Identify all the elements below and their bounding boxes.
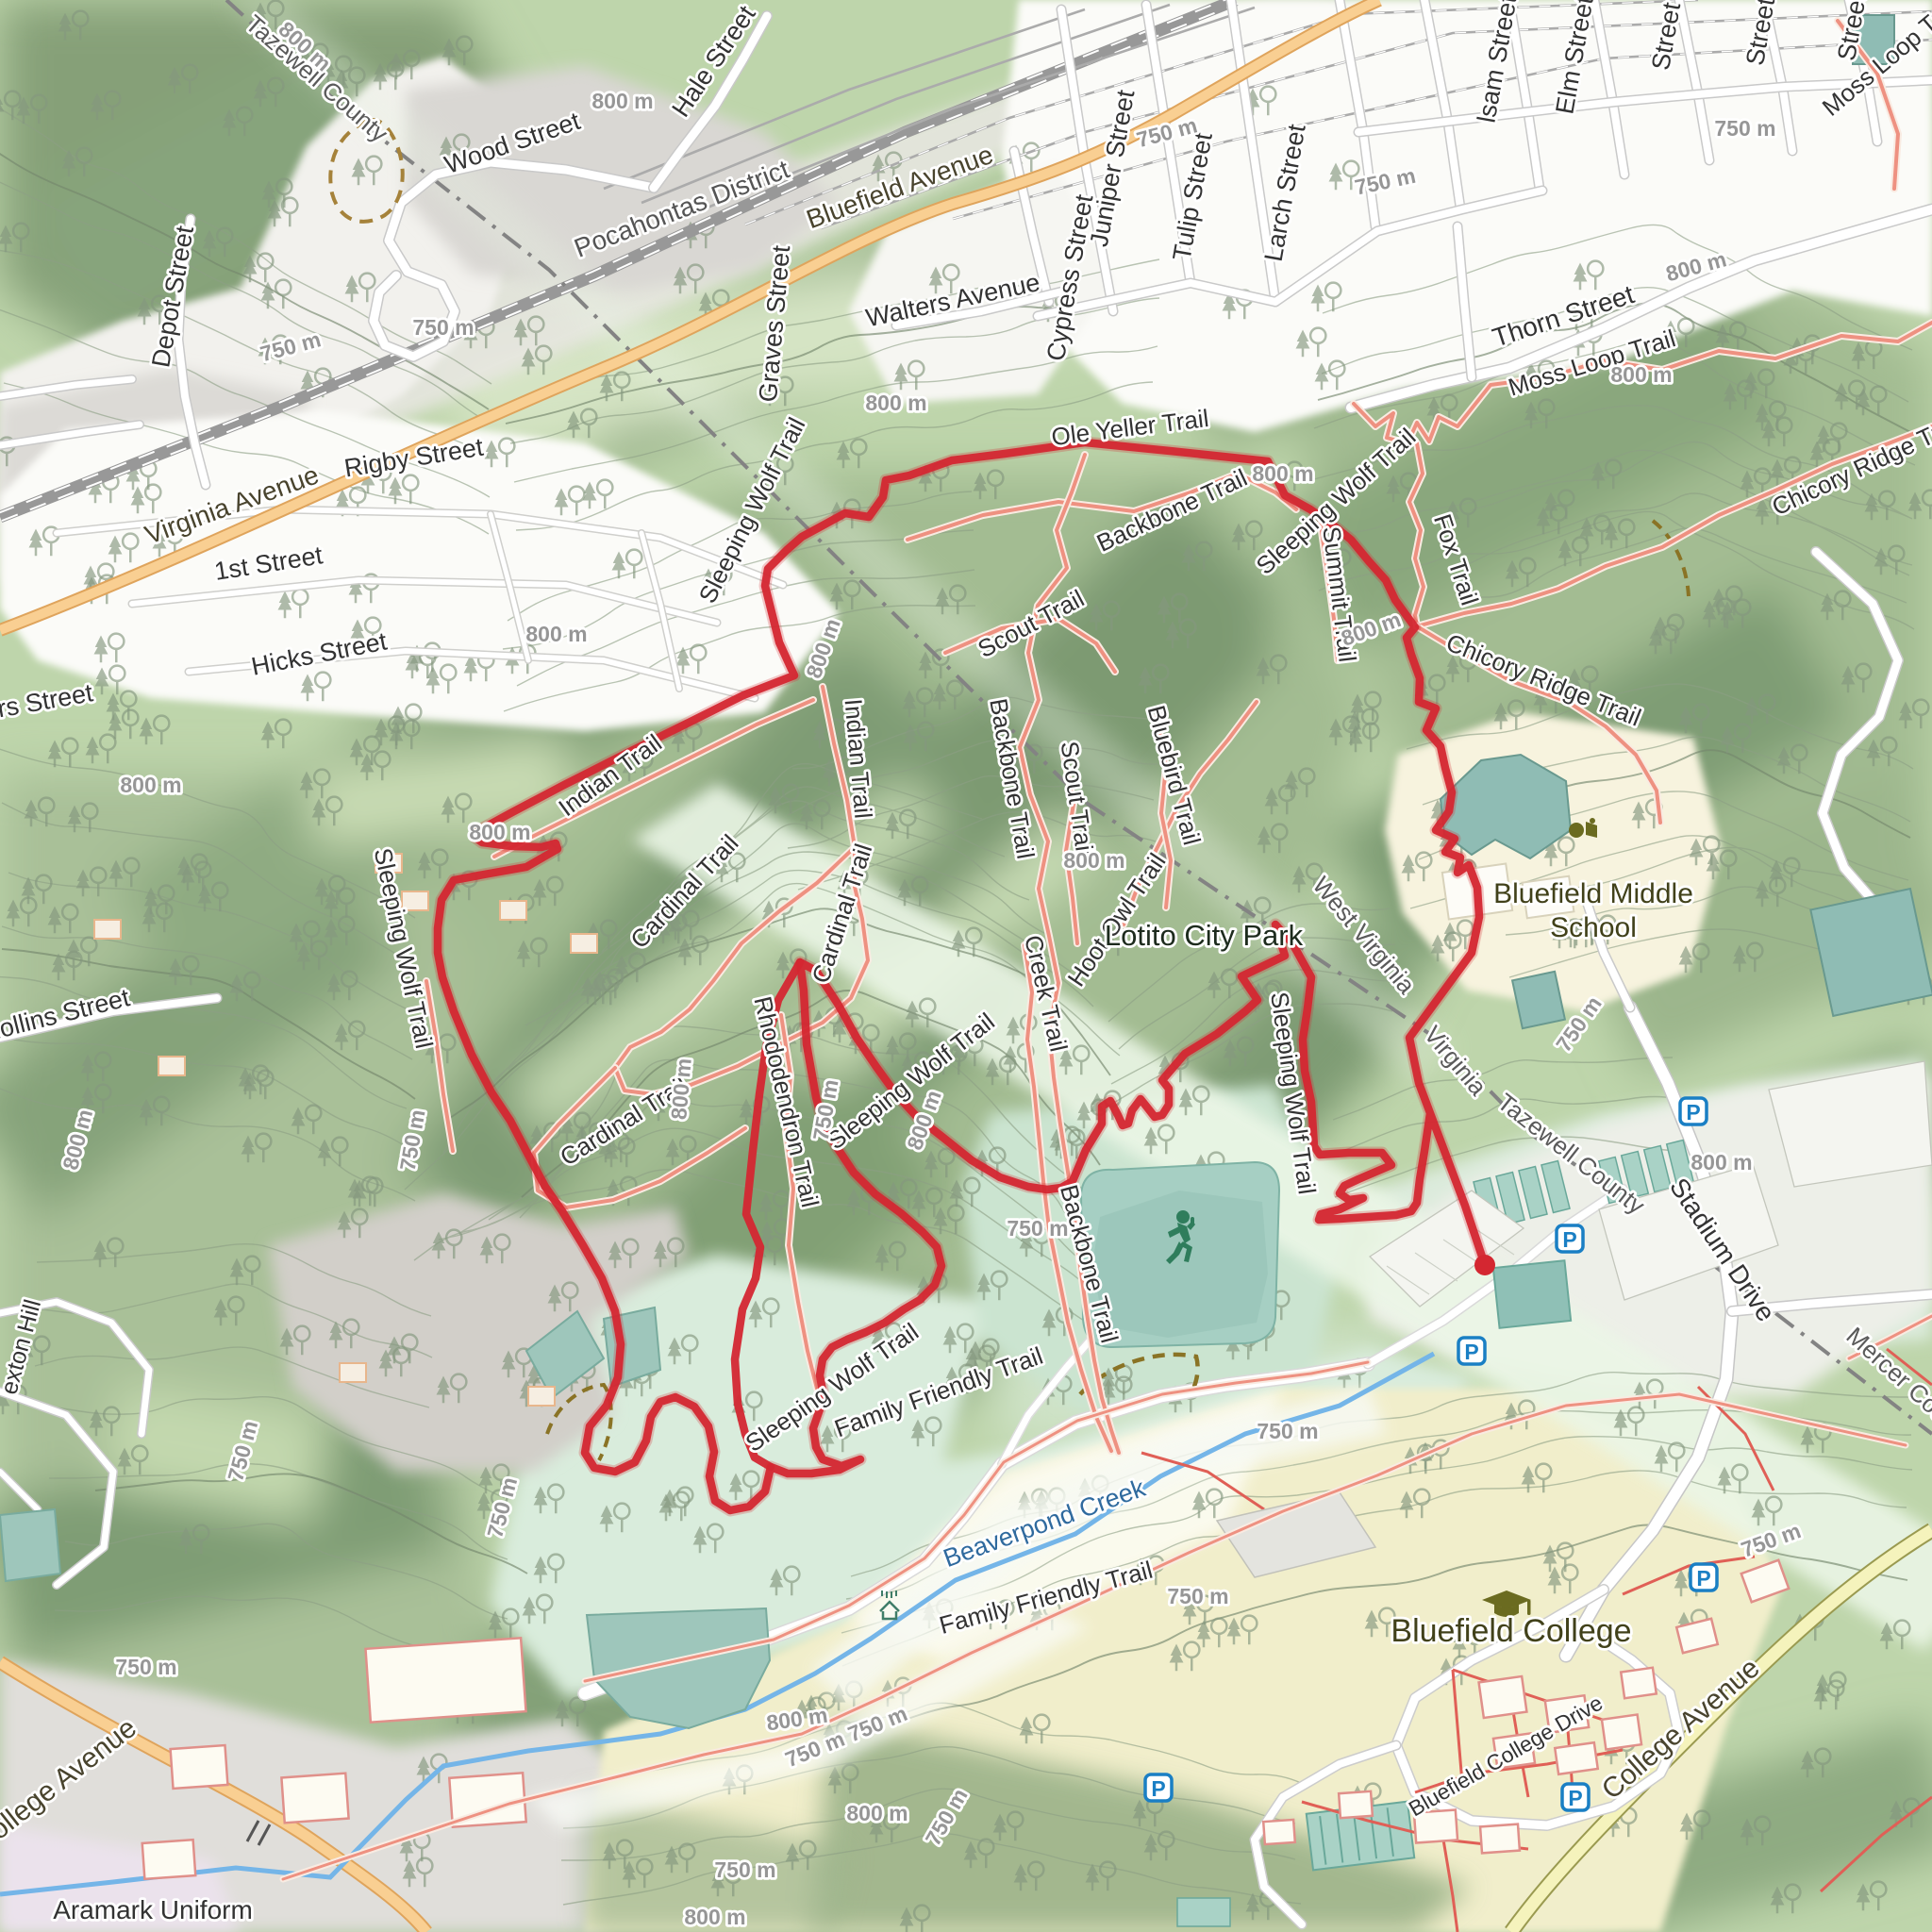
- svg-text:800 m: 800 m: [865, 391, 926, 415]
- svg-text:Lotito City Park: Lotito City Park: [1105, 919, 1304, 952]
- svg-text:750 m: 750 m: [1167, 1584, 1228, 1608]
- svg-text:800 m: 800 m: [525, 622, 587, 646]
- svg-text:750 m: 750 m: [412, 315, 474, 340]
- svg-text:800 m: 800 m: [591, 89, 653, 113]
- svg-text:750 m: 750 m: [1007, 1216, 1068, 1241]
- svg-text:Aramark Uniform: Aramark Uniform: [53, 1895, 253, 1924]
- svg-text:750 m: 750 m: [714, 1857, 775, 1882]
- svg-text:800 m: 800 m: [1690, 1150, 1752, 1174]
- svg-text:750 m: 750 m: [1714, 116, 1775, 141]
- svg-text:800 m: 800 m: [1610, 362, 1672, 387]
- svg-text:800 m: 800 m: [120, 773, 181, 797]
- svg-text:800 m: 800 m: [1252, 461, 1313, 486]
- svg-text:800 m: 800 m: [684, 1905, 745, 1929]
- svg-text:800 m: 800 m: [1063, 848, 1124, 873]
- svg-text:750 m: 750 m: [1257, 1419, 1318, 1443]
- svg-text:750 m: 750 m: [115, 1655, 176, 1679]
- svg-text:Bluefield Middle: Bluefield Middle: [1493, 878, 1693, 909]
- svg-text:Bluefield College: Bluefield College: [1391, 1613, 1631, 1649]
- svg-text:800 m: 800 m: [846, 1801, 908, 1825]
- svg-text:800 m: 800 m: [469, 820, 530, 844]
- svg-text:School: School: [1550, 912, 1637, 943]
